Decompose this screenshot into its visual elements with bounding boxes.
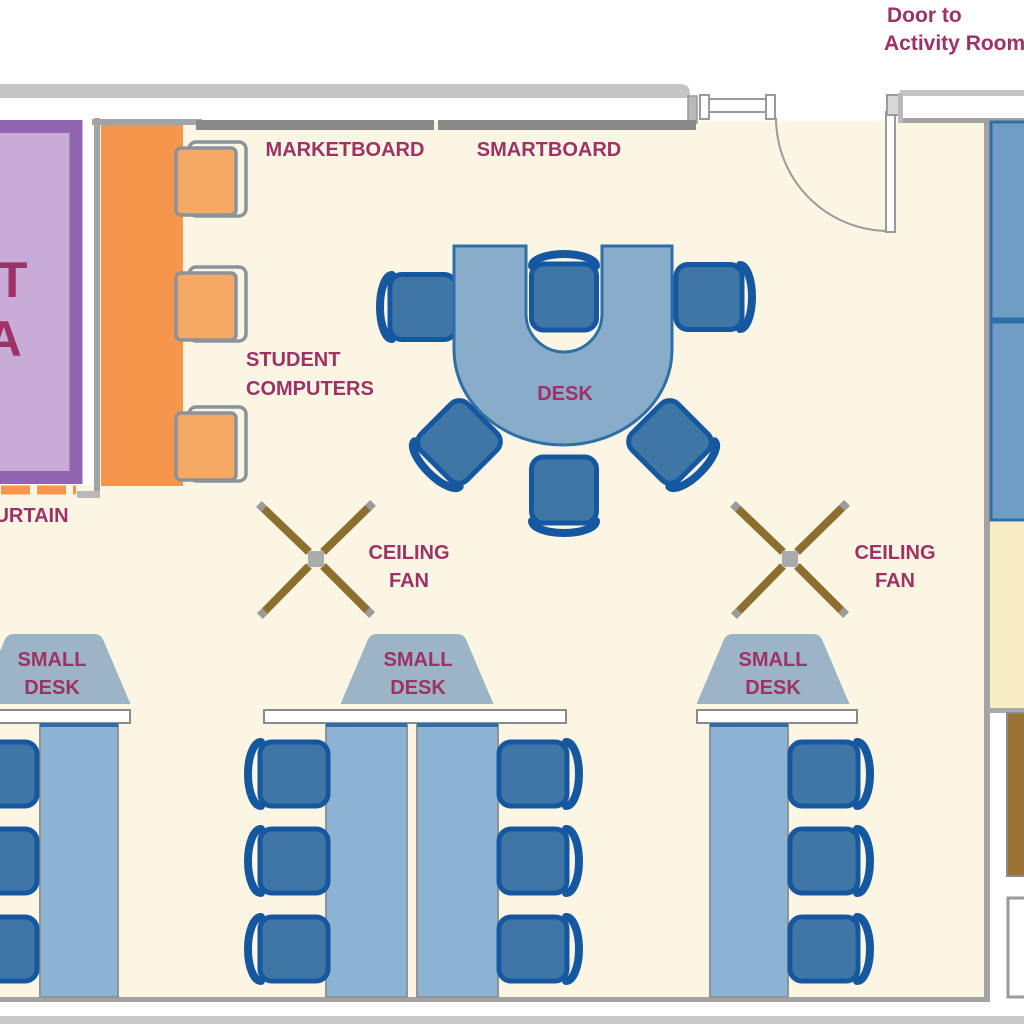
svg-text:SMALL: SMALL (18, 649, 87, 671)
svg-text:COMPUTERS: COMPUTERS (246, 378, 374, 400)
svg-text:CEILING: CEILING (854, 542, 935, 564)
svg-text:AREA: AREA (0, 311, 22, 367)
svg-text:MARKETBOARD: MARKETBOARD (266, 139, 425, 161)
svg-text:STUDENT: STUDENT (246, 349, 340, 371)
svg-text:DESK: DESK (745, 677, 801, 699)
svg-text:SMARTBOARD: SMARTBOARD (477, 139, 621, 161)
svg-text:FAN: FAN (875, 570, 915, 592)
svg-text:FAN: FAN (389, 570, 429, 592)
svg-text:DESK: DESK (390, 677, 446, 699)
svg-text:SMALL: SMALL (739, 649, 808, 671)
svg-text:Door to: Door to (887, 4, 962, 27)
svg-text:QUIET: QUIET (0, 252, 27, 308)
svg-text:DESK: DESK (537, 383, 593, 405)
svg-text:SMALL: SMALL (384, 649, 453, 671)
svg-text:CURTAIN: CURTAIN (0, 505, 69, 527)
svg-text:DESK: DESK (24, 677, 80, 699)
svg-text:CEILING: CEILING (368, 542, 449, 564)
svg-text:Activity Room: Activity Room (884, 32, 1024, 55)
